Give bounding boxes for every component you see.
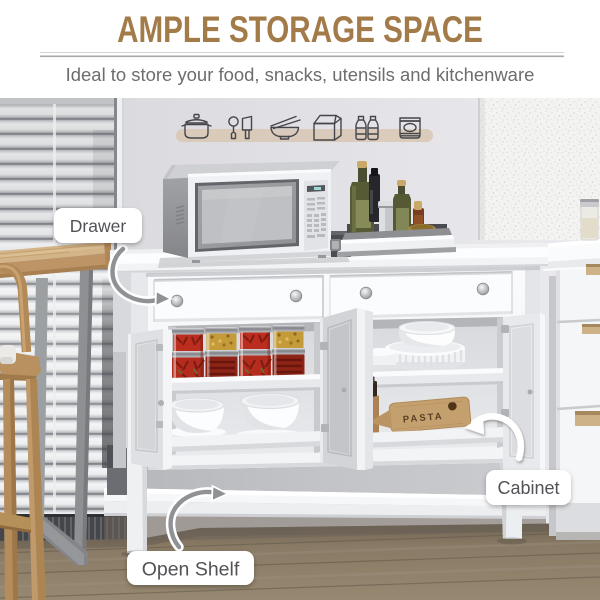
svg-text:AMPLE STORAGE SPACE: AMPLE STORAGE SPACE: [117, 9, 483, 51]
svg-text:Cabinet: Cabinet: [497, 478, 559, 498]
svg-text:Drawer: Drawer: [70, 216, 127, 236]
svg-text:Open Shelf: Open Shelf: [142, 559, 240, 581]
svg-text:Ideal to store your food, snac: Ideal to store your food, snacks, utensi…: [66, 64, 535, 85]
